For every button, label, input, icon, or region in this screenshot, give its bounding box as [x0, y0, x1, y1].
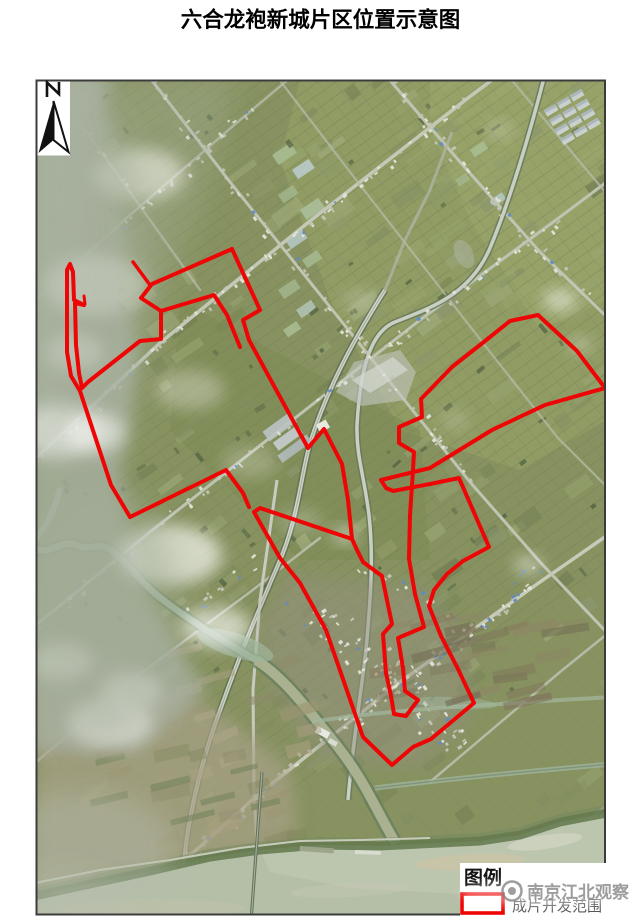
svg-text:南京江北观察: 南京江北观察	[527, 882, 630, 902]
svg-text:六合龙袍新城片区位置示意图: 六合龙袍新城片区位置示意图	[181, 7, 461, 32]
